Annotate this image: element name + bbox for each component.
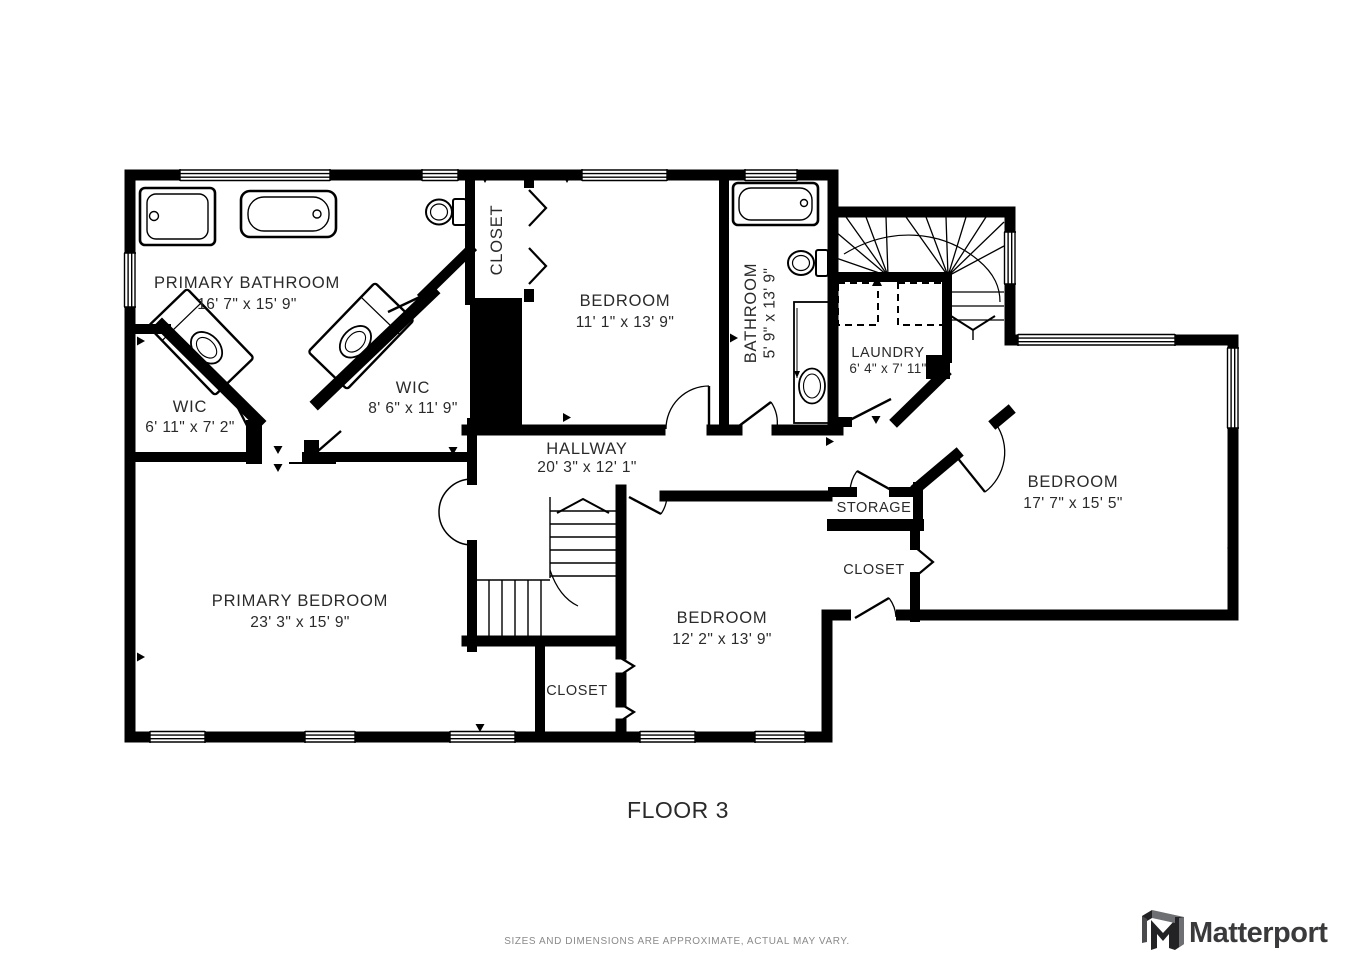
room-label-storage: STORAGE	[837, 500, 912, 516]
room-name: PRIMARY BATHROOM	[154, 274, 340, 292]
room-name: PRIMARY BEDROOM	[212, 592, 388, 610]
matterport-logo-icon	[1142, 910, 1184, 950]
room-label-closet-bottom: CLOSET	[546, 683, 608, 699]
room-label-bedroom-bottom: BEDROOM 12' 2" x 13' 9"	[672, 609, 772, 648]
room-label-bedroom-right: BEDROOM 17' 7" x 15' 5"	[1023, 473, 1123, 512]
toilet-bathroom	[788, 250, 828, 276]
room-name: WIC	[173, 398, 207, 416]
room-label-hallway: HALLWAY 20' 3" x 12' 1"	[537, 440, 637, 476]
room-dims: 20' 3" x 12' 1"	[537, 459, 637, 476]
room-dims: 8' 6" x 11' 9"	[368, 400, 457, 417]
floor-label: FLOOR 3	[627, 797, 729, 823]
room-label-closet-right: CLOSET	[843, 562, 905, 578]
room-name: WIC	[396, 379, 430, 397]
room-name: CLOSET	[488, 205, 506, 276]
room-name: LAUNDRY	[851, 345, 924, 361]
stairs-center	[472, 497, 616, 641]
bathtub-bathroom	[733, 183, 818, 225]
room-name: STORAGE	[837, 500, 912, 516]
floor-plan-canvas: PRIMARY BATHROOM 16' 7" x 15' 9" WIC 6' …	[0, 0, 1357, 960]
windows	[124, 169, 1240, 744]
room-dims: 16' 7" x 15' 9"	[197, 296, 297, 313]
room-label-wic-left: WIC 6' 11" x 7' 2"	[145, 398, 234, 436]
room-name: BEDROOM	[580, 292, 671, 310]
disclaimer-text: SIZES AND DIMENSIONS ARE APPROXIMATE, AC…	[504, 936, 849, 947]
vanity-right	[308, 283, 414, 390]
walls	[130, 175, 1233, 737]
brand-wordmark: Matterport	[1189, 917, 1328, 949]
room-name: CLOSET	[546, 683, 608, 699]
toilet-primary	[426, 199, 466, 225]
sink-bathroom	[794, 302, 829, 423]
room-name: HALLWAY	[546, 440, 627, 458]
room-dims: 5' 9" x 13' 9"	[762, 268, 779, 359]
matterport-logo: Matterport	[1142, 910, 1328, 950]
room-dims: 17' 7" x 15' 5"	[1023, 495, 1123, 512]
room-name: BEDROOM	[1028, 473, 1119, 491]
room-label-wic-right: WIC 8' 6" x 11' 9"	[368, 379, 457, 417]
room-labels: PRIMARY BATHROOM 16' 7" x 15' 9" WIC 6' …	[145, 205, 1123, 699]
room-dims: 11' 1" x 13' 9"	[576, 314, 674, 331]
floor-plan-page: PRIMARY BATHROOM 16' 7" x 15' 9" WIC 6' …	[0, 0, 1357, 960]
room-name: BEDROOM	[677, 609, 768, 627]
room-label-bedroom-top: BEDROOM 11' 1" x 13' 9"	[576, 292, 674, 331]
room-label-bathroom: BATHROOM 5' 9" x 13' 9"	[742, 263, 779, 364]
room-name: BATHROOM	[742, 263, 760, 364]
room-label-closet-top: CLOSET	[488, 205, 506, 276]
dimension-ticks	[137, 175, 1235, 732]
washer-dryer	[838, 283, 943, 325]
room-label-primary-bedroom: PRIMARY BEDROOM 23' 3" x 15' 9"	[212, 592, 388, 631]
room-dims: 6' 4" x 7' 11"	[849, 361, 926, 376]
room-dims: 12' 2" x 13' 9"	[672, 631, 772, 648]
shower	[140, 188, 215, 245]
room-dims: 6' 11" x 7' 2"	[145, 419, 234, 436]
bathtub-primary	[241, 191, 336, 237]
room-name: CLOSET	[843, 562, 905, 578]
room-dims: 23' 3" x 15' 9"	[250, 614, 350, 631]
room-label-laundry: LAUNDRY 6' 4" x 7' 11"	[849, 345, 926, 376]
